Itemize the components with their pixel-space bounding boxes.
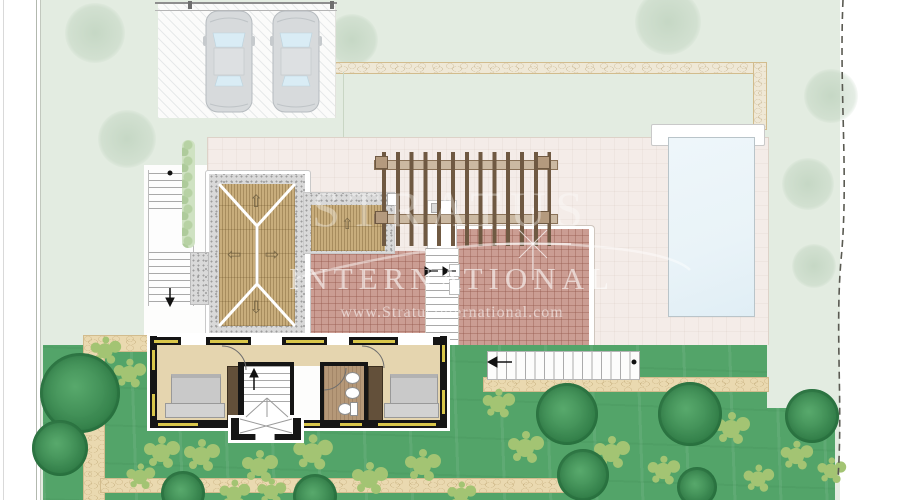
plot-boundary-dashed (838, 0, 844, 478)
plan-linework (0, 0, 900, 500)
roof-ridge-lines (220, 185, 294, 325)
stair-lines (240, 398, 292, 433)
door-arcs (222, 346, 384, 390)
site-plan: ⇧ ⇦ ⇨ ⇩ ⇧ (0, 0, 900, 500)
